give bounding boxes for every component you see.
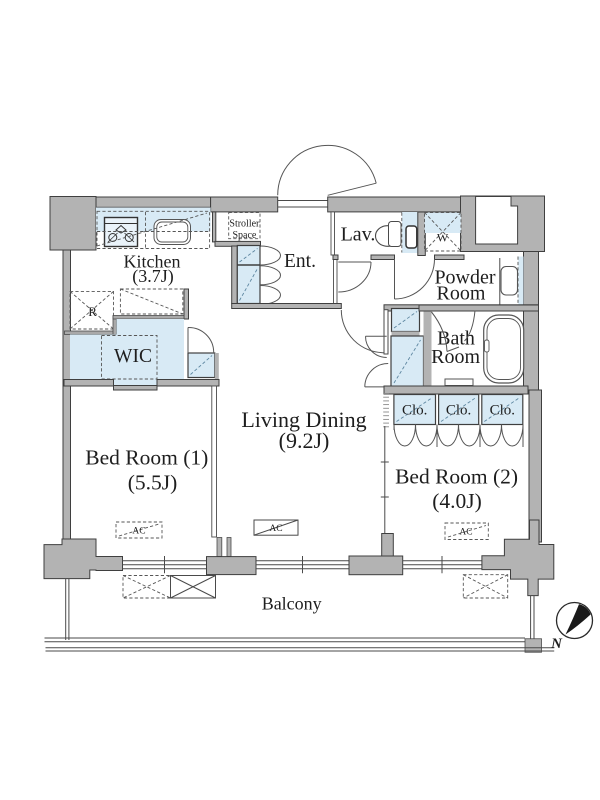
svg-text:(5.5J): (5.5J) <box>128 471 178 495</box>
svg-text:WIC: WIC <box>114 346 152 367</box>
svg-text:Balcony: Balcony <box>262 594 322 614</box>
svg-text:Clo.: Clo. <box>446 403 471 419</box>
svg-text:Room: Room <box>437 283 486 305</box>
svg-text:AC: AC <box>269 524 282 534</box>
svg-text:Stroller: Stroller <box>229 219 260 230</box>
svg-text:Clo.: Clo. <box>490 403 515 419</box>
svg-text:(9.2J): (9.2J) <box>279 428 330 453</box>
svg-text:W: W <box>437 230 449 244</box>
svg-text:N: N <box>550 636 563 652</box>
svg-text:Space: Space <box>232 230 256 241</box>
svg-text:Room: Room <box>431 346 480 368</box>
svg-text:AC: AC <box>132 527 145 537</box>
svg-text:(3.7J): (3.7J) <box>132 266 174 287</box>
svg-text:Bed Room (1): Bed Room (1) <box>85 446 208 470</box>
svg-text:Bed Room (2): Bed Room (2) <box>395 465 518 489</box>
svg-text:Lav.: Lav. <box>341 224 376 246</box>
svg-text:R: R <box>88 304 97 319</box>
svg-text:Clo.: Clo. <box>402 403 427 419</box>
svg-text:AC: AC <box>459 528 472 538</box>
svg-text:Ent.: Ent. <box>284 251 316 272</box>
svg-text:(4.0J): (4.0J) <box>432 489 482 513</box>
